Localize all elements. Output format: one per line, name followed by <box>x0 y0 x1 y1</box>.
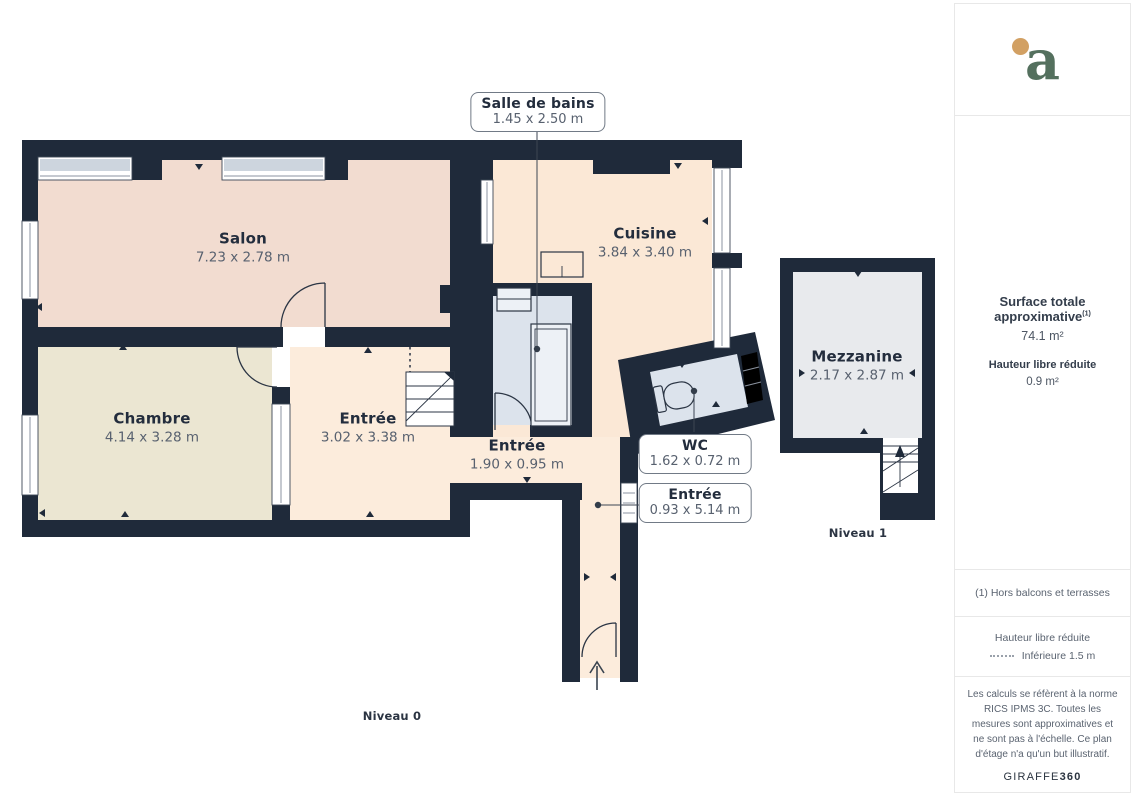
legend: Hauteur libre réduite Inférieure 1.5 m <box>954 617 1131 677</box>
chambre-window-left <box>22 415 38 495</box>
leader-dot <box>691 388 697 394</box>
wall-segment <box>325 327 460 347</box>
wall-segment <box>530 425 592 437</box>
wall-segment <box>620 437 638 682</box>
disclaimer: Les calculs se réfèrent à la norme RICS … <box>954 677 1131 793</box>
cuisine-window-left <box>481 180 493 244</box>
chambre-interior-window <box>272 404 290 505</box>
wall-segment <box>440 285 452 313</box>
brand-logo: a <box>954 3 1131 116</box>
surface-summary: Surface totale approximative(1) 74.1 m² … <box>954 116 1131 570</box>
reduced-height-value: 0.9 m² <box>1026 376 1059 388</box>
info-panel: a Surface totale approximative(1) 74.1 m… <box>954 3 1131 793</box>
leader-dot <box>595 502 601 508</box>
salon-window-top-2 <box>222 157 325 180</box>
surface-total-value: 74.1 m² <box>1021 329 1063 343</box>
wall-segment <box>272 387 290 404</box>
stairs-level1-icon <box>883 438 918 493</box>
legend-row: Inférieure 1.5 m <box>990 650 1096 662</box>
wall-segment <box>450 500 470 537</box>
wall-segment <box>272 505 290 520</box>
wall-segment <box>712 140 742 168</box>
reduced-height-title: Hauteur libre réduite <box>989 359 1097 371</box>
wall-segment <box>22 327 283 347</box>
room-label-entree: Entrée 3.02 x 3.38 m <box>321 410 415 447</box>
corridor-window-right <box>621 483 637 523</box>
wall-segment <box>22 520 470 537</box>
level-label-niveau-1: Niveau 1 <box>829 526 887 540</box>
legend-title: Hauteur libre réduite <box>995 632 1090 644</box>
wall-segment <box>450 483 582 500</box>
callout-entree-corridor: Entrée 0.93 x 5.14 m <box>639 483 752 523</box>
logo-dot-icon <box>1012 38 1029 55</box>
wall-segment <box>712 253 742 268</box>
salon-window-top-1 <box>38 157 132 180</box>
room-label-salon: Salon 7.23 x 2.78 m <box>196 230 290 267</box>
leader-dot <box>534 346 540 352</box>
wall-segment <box>325 160 348 180</box>
wall-segment <box>572 283 592 437</box>
cuisine-window-right-2 <box>714 268 730 348</box>
salon-window-left <box>22 221 38 299</box>
level-label-niveau-0: Niveau 0 <box>363 709 421 723</box>
room-label-entree-small: Entrée 1.90 x 0.95 m <box>470 437 564 474</box>
callout-wc: WC 1.62 x 0.72 m <box>639 434 752 474</box>
legend-value: Inférieure 1.5 m <box>1022 650 1096 662</box>
wall-segment <box>593 158 670 174</box>
cuisine-window-right-1 <box>714 168 730 253</box>
floor-plan-page: Salon 7.23 x 2.78 m Chambre 4.14 x 3.28 … <box>0 0 1131 800</box>
brand-wordmark: GIRAFFE360 <box>1003 771 1081 783</box>
surface-total-title: Surface totale approximative(1) <box>955 294 1130 324</box>
wall-segment <box>132 160 162 180</box>
room-label-mezzanine: Mezzanine 2.17 x 2.87 m <box>810 348 904 385</box>
callout-salle-de-bains: Salle de bains 1.45 x 2.50 m <box>470 92 605 132</box>
footnote-marker: (1) <box>1082 311 1091 318</box>
washbasin-icon <box>497 288 531 311</box>
kitchen-sink-icon <box>541 252 583 277</box>
room-label-chambre: Chambre 4.14 x 3.28 m <box>105 410 199 447</box>
logo-letter: a <box>1025 33 1060 87</box>
footnote-text: (1) Hors balcons et terrasses <box>975 587 1110 599</box>
disclaimer-text: Les calculs se réfèrent à la norme RICS … <box>967 687 1118 762</box>
wall-segment <box>562 500 580 682</box>
dashed-line-icon <box>990 655 1014 657</box>
footnote: (1) Hors balcons et terrasses <box>954 570 1131 617</box>
room-label-cuisine: Cuisine 3.84 x 3.40 m <box>598 225 692 262</box>
